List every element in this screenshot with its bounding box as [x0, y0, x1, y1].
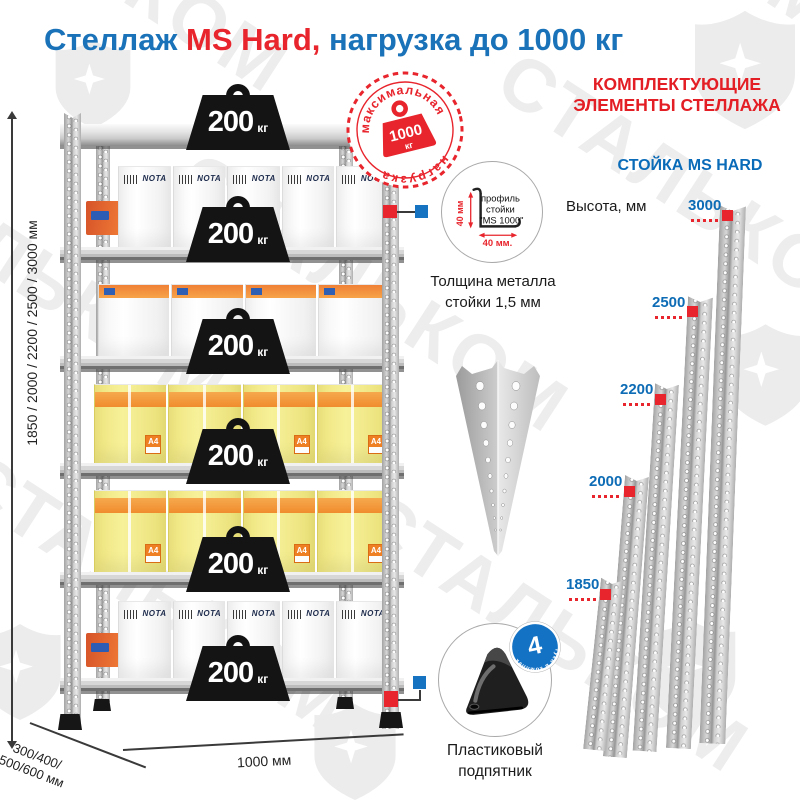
weight-value: 200	[208, 657, 253, 690]
leader-dots	[623, 403, 653, 406]
profile-text-1: профиль	[481, 193, 520, 204]
depth-dimension-label: 300/400/ 500/600 мм	[0, 737, 72, 791]
weight-value: 200	[208, 330, 253, 363]
paper-label: A4	[368, 544, 384, 563]
barcode-icon	[288, 175, 301, 184]
weight-value: 200	[208, 548, 253, 581]
post-height-label: 2500	[652, 294, 685, 311]
barcode-icon	[179, 610, 192, 619]
box-paper: A4	[94, 384, 166, 463]
barcode-icon	[179, 175, 192, 184]
barcode-icon	[124, 610, 137, 619]
components-heading-2: ЭЛЕМЕНТЫ СТЕЛЛАЖА	[573, 95, 781, 115]
foot-caption-2: подпятник	[458, 763, 532, 780]
weight-unit: кг	[257, 563, 268, 577]
box-brand-label: NOTA	[252, 609, 276, 618]
barcode-icon	[233, 610, 246, 619]
post-height-label: 3000	[688, 197, 721, 214]
width-dimension-label: 1000 мм	[237, 752, 292, 771]
weight-unit: кг	[257, 672, 268, 686]
weight-value: 200	[208, 440, 253, 473]
box-brand-label: NOTA	[252, 174, 276, 183]
paper-label: A4	[368, 435, 384, 454]
barcode-icon	[288, 610, 301, 619]
weight-unit: кг	[257, 455, 268, 469]
weight-200kg: 200кг	[186, 84, 290, 150]
box-side-orange	[86, 201, 122, 235]
post-3d-render	[452, 358, 544, 560]
arrow-up	[7, 111, 17, 119]
box-paper: A4	[94, 490, 166, 572]
post-height-label: 2200	[620, 381, 653, 398]
weight-value: 200	[208, 218, 253, 251]
weight-value: 200	[208, 106, 253, 139]
watermark-shield	[0, 620, 65, 724]
infographic-page: СТАЛЬКОМ СТАЛЬКОМ СТАЛЬКОМ СТАЛЬКОМ СТАЛ…	[0, 0, 800, 800]
title-part-blue2: нагрузка до 1000 кг	[320, 22, 623, 57]
box-orange-lid	[98, 284, 169, 357]
post-height-label: 2000	[589, 473, 622, 490]
box-orange-lid	[318, 284, 389, 357]
paper-label: A4	[294, 435, 310, 454]
components-heading: КОМПЛЕКТУЮЩИЕ ЭЛЕМЕНТЫ СТЕЛЛАЖА	[552, 74, 800, 116]
shelf-foot	[58, 714, 82, 730]
profile-dim-horizontal: 40 мм.	[483, 237, 513, 248]
components-heading-1: КОМПЛЕКТУЮЩИЕ	[593, 74, 761, 94]
callout-square-blue	[415, 205, 428, 218]
leader-square	[600, 589, 611, 600]
title-part-blue: Стеллаж	[44, 22, 186, 57]
weight-unit: кг	[257, 121, 268, 135]
leader-dots	[569, 598, 598, 601]
height-dimension-label: 1850 / 2000 / 2200 / 2500 / 3000 мм	[24, 183, 40, 483]
weight-200kg: 200кг	[186, 526, 290, 592]
leader-square	[655, 394, 666, 405]
max-load-stamp: максимальная нагрузка 1000 кг	[343, 68, 467, 192]
barcode-icon	[124, 175, 137, 184]
shelf-foot	[93, 699, 111, 711]
shelf-foot	[379, 712, 403, 728]
leader-dots	[592, 495, 622, 498]
callout-square-red	[383, 205, 397, 218]
profile-text-2: стойки	[486, 203, 515, 214]
weight-unit: кг	[257, 233, 268, 247]
box-nota: NOTA	[336, 601, 389, 678]
box-nota: NOTA	[118, 601, 171, 678]
box-brand-label: NOTA	[197, 609, 221, 618]
profile-caption-2: стойки 1,5 мм	[445, 294, 541, 311]
profile-caption-1: Толщина металла	[430, 273, 555, 290]
leader-square	[687, 306, 698, 317]
leader-dots	[655, 316, 685, 319]
weight-200kg: 200кг	[186, 308, 290, 374]
foot-caption: Пластиковый подпятник	[405, 740, 585, 782]
height-dimension-line	[11, 117, 13, 743]
box-nota: NOTA	[118, 166, 171, 249]
callout-line	[398, 699, 420, 701]
leader-square	[722, 210, 733, 221]
callout-square-blue	[413, 676, 426, 689]
box-brand-label: NOTA	[143, 609, 167, 618]
paper-label: A4	[145, 544, 161, 563]
box-brand-label: NOTA	[197, 174, 221, 183]
profile-caption: Толщина металла стойки 1,5 мм	[408, 271, 578, 313]
profile-text-3: "MS 1000"	[479, 214, 523, 225]
callout-line	[397, 211, 415, 213]
shelf-foot	[336, 697, 354, 709]
box-brand-label: NOTA	[143, 174, 167, 183]
weight-200kg: 200кг	[186, 418, 290, 484]
box-brand-label: NOTA	[361, 609, 385, 618]
shelf-post-front-left	[64, 113, 81, 729]
paper-label: A4	[145, 435, 161, 454]
weight-unit: кг	[257, 345, 268, 359]
box-paper: A4	[317, 490, 389, 572]
barcode-icon	[342, 610, 355, 619]
badge-4-pieces: 4 штуки в комплекте	[508, 620, 562, 674]
weight-200kg: 200кг	[186, 196, 290, 262]
leader-square	[624, 486, 635, 497]
box-side-orange	[86, 633, 122, 667]
box-brand-label: NOTA	[306, 174, 330, 183]
profile-dim-vertical: 40 мм	[455, 201, 465, 227]
post-height-label: 1850	[566, 576, 599, 593]
height-units-label: Высота, мм	[566, 198, 646, 215]
page-title: Стеллаж MS Hard, нагрузка до 1000 кг	[44, 22, 623, 58]
paper-label: A4	[294, 544, 310, 563]
barcode-icon	[233, 175, 246, 184]
callout-square-red	[384, 691, 398, 707]
box-paper: A4	[317, 384, 389, 463]
title-part-red: MS Hard,	[186, 22, 320, 57]
components-subheading: СТОЙКА MS HARD	[590, 157, 790, 175]
leader-dots	[691, 219, 721, 222]
weight-200kg: 200кг	[186, 635, 290, 701]
foot-caption-1: Пластиковый	[447, 742, 543, 759]
box-brand-label: NOTA	[306, 609, 330, 618]
